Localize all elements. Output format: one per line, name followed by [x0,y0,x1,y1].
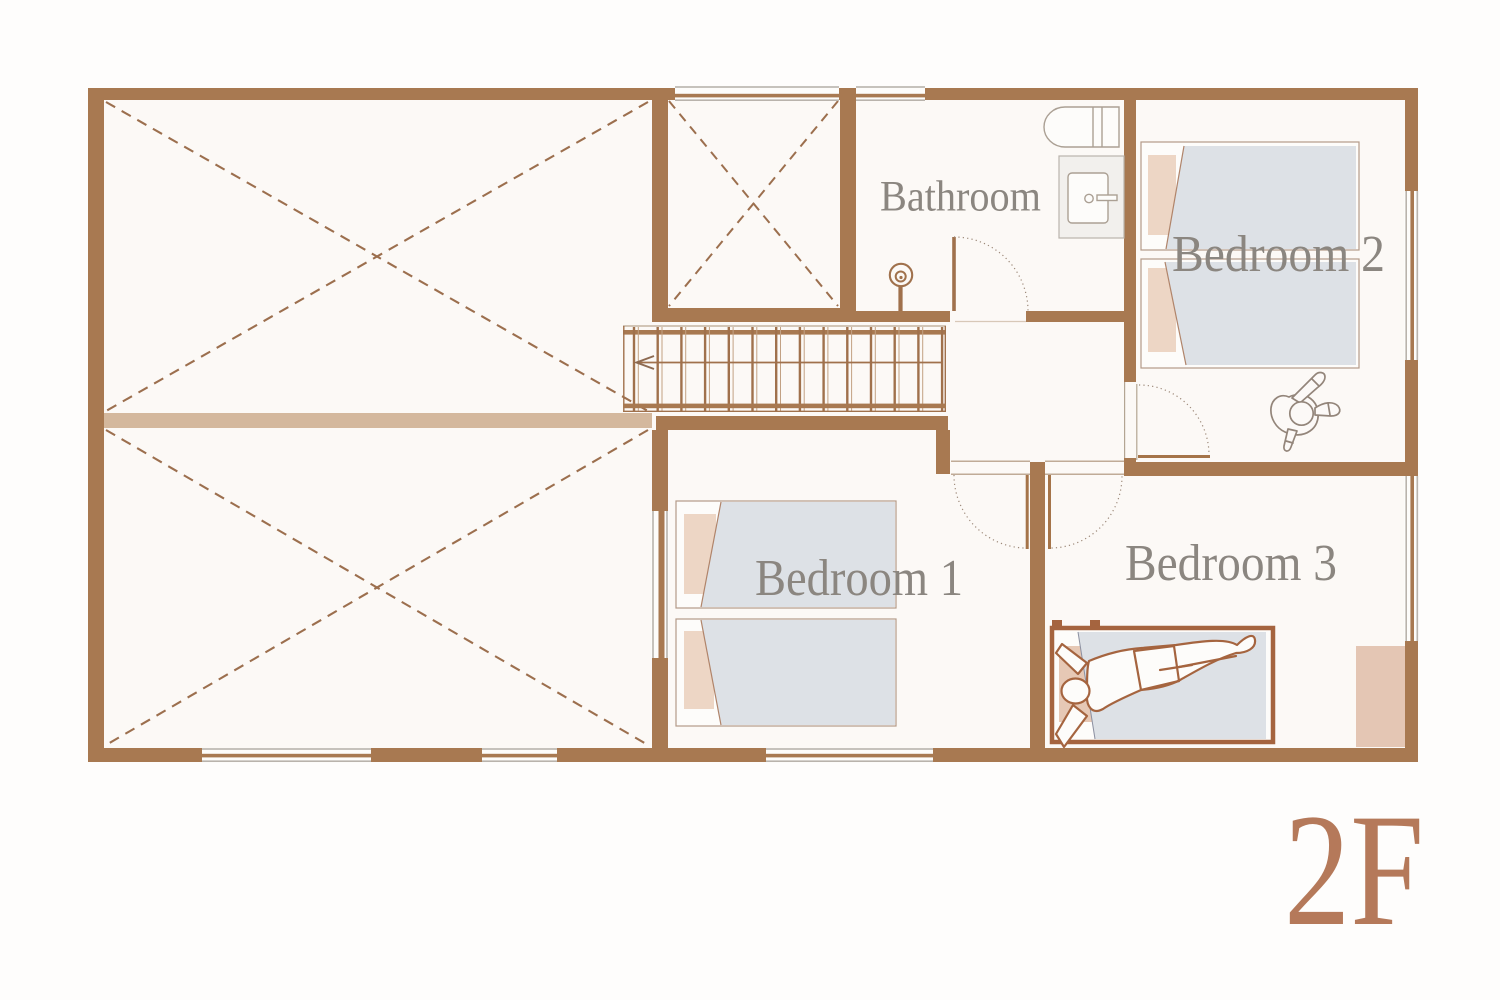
svg-text:Bedroom 2: Bedroom 2 [1172,226,1385,283]
svg-text:Bathroom: Bathroom [880,173,1041,221]
svg-text:Bedroom 1: Bedroom 1 [755,550,963,607]
svg-text:2F: 2F [1284,781,1424,959]
svg-text:Bedroom 3: Bedroom 3 [1125,535,1337,592]
